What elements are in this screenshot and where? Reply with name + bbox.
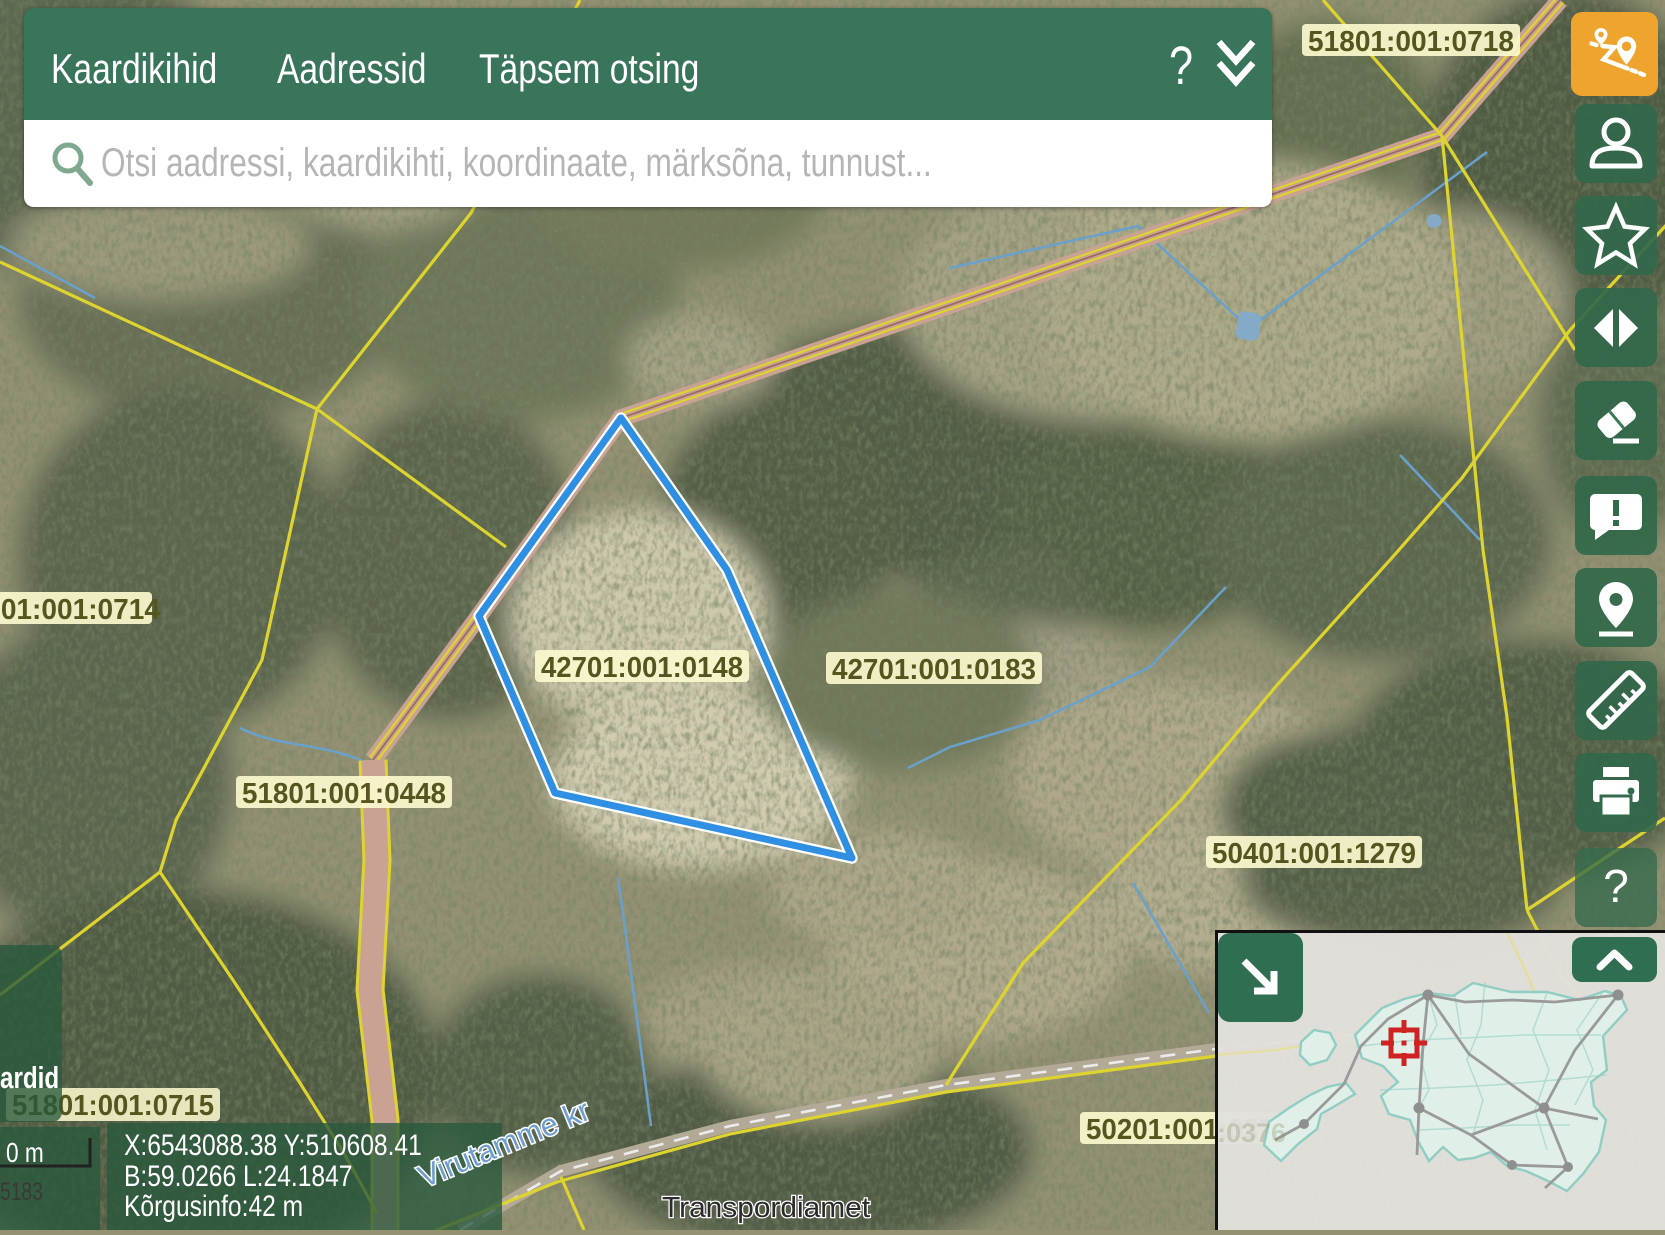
svg-text:51801:001:0448: 51801:001:0448 — [242, 778, 446, 810]
svg-text:50401:001:1279: 50401:001:1279 — [1212, 838, 1416, 870]
svg-text:42701:001:0148: 42701:001:0148 — [541, 652, 743, 684]
svg-text:?: ? — [1603, 860, 1629, 912]
svg-text:Virutamme kr: Virutamme kr — [413, 1095, 595, 1194]
svg-text:42701:001:0183: 42701:001:0183 — [832, 654, 1036, 686]
svg-text:Transpordiamet: Transpordiamet — [662, 1192, 870, 1224]
svg-text::0376: :0376 — [1217, 1118, 1286, 1148]
svg-text:51801:001:0714: 51801:001:0714 — [0, 594, 160, 626]
svg-text:51801:001:0718: 51801:001:0718 — [1308, 26, 1514, 58]
